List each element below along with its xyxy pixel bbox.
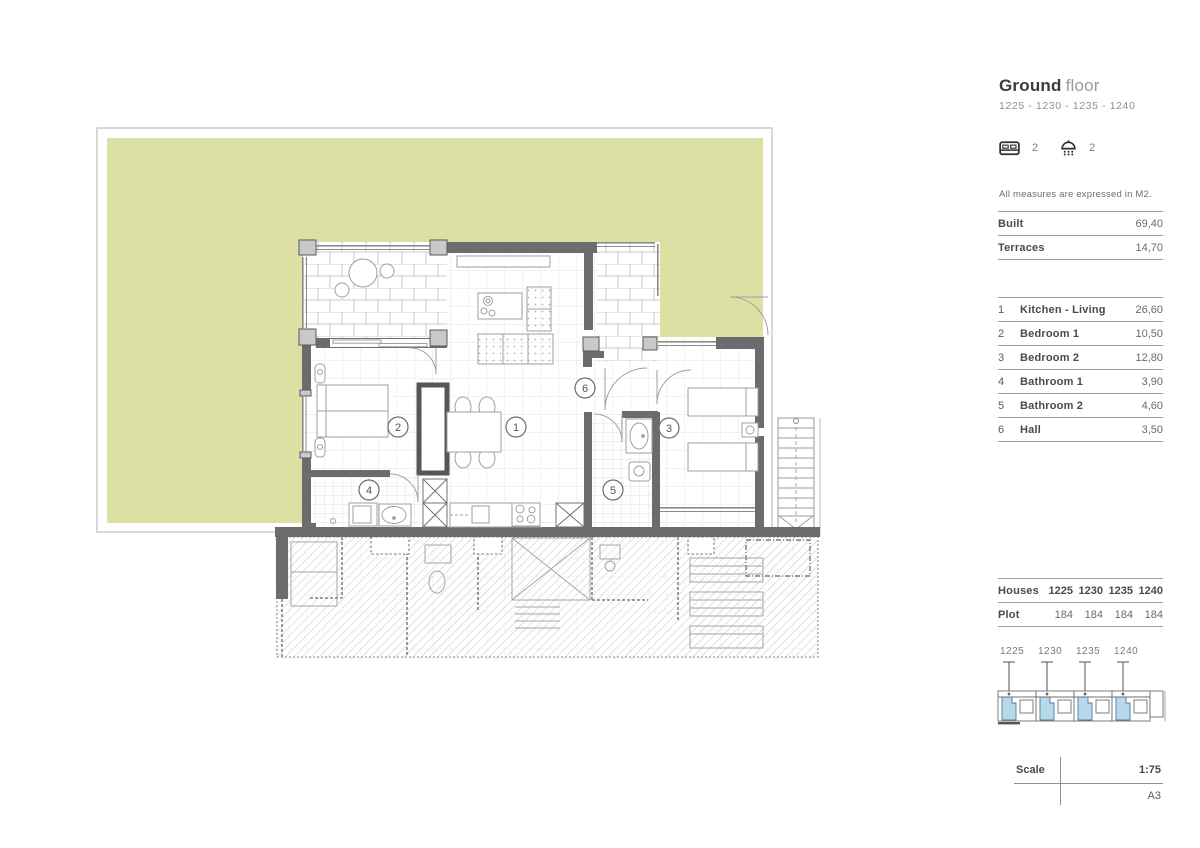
room-badge-6: 6 bbox=[575, 378, 595, 398]
unit-numbers-subtitle: 1225 - 1230 - 1235 - 1240 bbox=[999, 100, 1135, 112]
svg-text:2: 2 bbox=[395, 422, 401, 434]
page-title: Groundfloor bbox=[999, 76, 1100, 96]
neighbour-unit-hatched bbox=[275, 535, 818, 659]
stat-label: Terraces bbox=[998, 242, 1045, 254]
external-stairs bbox=[778, 418, 820, 535]
stat-value: 69,40 bbox=[1135, 218, 1163, 230]
room-name: Bathroom 1 bbox=[1020, 376, 1083, 388]
plot-label: Plot bbox=[998, 609, 1043, 621]
houses-table: Houses 1225 1230 1235 1240 Plot 184 184 … bbox=[998, 578, 1163, 627]
room-area: 4,60 bbox=[1142, 400, 1163, 412]
site-label-1235: 1235 bbox=[1076, 646, 1100, 657]
room-badge-1: 1 bbox=[506, 417, 526, 437]
rooms-table: 1 Kitchen - Living 26,60 2 Bedroom 1 10,… bbox=[998, 297, 1163, 442]
bedrooms-count: 2 bbox=[1032, 142, 1038, 154]
table-row: 2 Bedroom 1 10,50 bbox=[998, 321, 1163, 345]
table-row: Terraces 14,70 bbox=[998, 235, 1163, 260]
site-label-1240: 1240 bbox=[1114, 646, 1138, 657]
room-number: 3 bbox=[998, 352, 1020, 364]
bathroom2-fixtures bbox=[626, 419, 652, 481]
info-panel: Groundfloor 1225 - 1230 - 1235 - 1240 2 … bbox=[998, 0, 1163, 848]
scale-block: Scale 1:75 A3 bbox=[998, 757, 1163, 807]
scale-value: 1:75 bbox=[1139, 764, 1161, 776]
room-badge-3: 3 bbox=[659, 418, 679, 438]
table-row: 1 Kitchen - Living 26,60 bbox=[998, 297, 1163, 321]
stat-label: Built bbox=[998, 218, 1023, 230]
room-name: Kitchen - Living bbox=[1020, 304, 1106, 316]
svg-text:6: 6 bbox=[582, 383, 588, 395]
table-row: 6 Hall 3,50 bbox=[998, 417, 1163, 442]
svg-text:4: 4 bbox=[366, 485, 372, 497]
site-label-1225: 1225 bbox=[1000, 646, 1024, 657]
closet bbox=[419, 385, 447, 473]
room-badge-5: 5 bbox=[603, 480, 623, 500]
table-row: 5 Bathroom 2 4,60 bbox=[998, 393, 1163, 417]
floorplan-sheet: 1 2 3 4 5 6 Groundfloor 1225 - 1230 - 12… bbox=[0, 0, 1200, 848]
amenities-row: 2 2 bbox=[999, 138, 1095, 158]
room-number: 1 bbox=[998, 304, 1020, 316]
room-name: Bathroom 2 bbox=[1020, 400, 1083, 412]
table-row: 4 Bathroom 1 3,90 bbox=[998, 369, 1163, 393]
site-key-diagram: 1225 1230 1235 1240 bbox=[996, 642, 1168, 742]
room-name: Bedroom 1 bbox=[1020, 328, 1079, 340]
room-area: 3,90 bbox=[1142, 376, 1163, 388]
table-row: Built 69,40 bbox=[998, 211, 1163, 235]
leader-lines bbox=[1003, 662, 1129, 695]
title-sub: floor bbox=[1066, 76, 1100, 95]
scale-divider-vertical bbox=[1060, 757, 1061, 805]
room-number: 6 bbox=[998, 424, 1020, 436]
floor-plan-drawing: 1 2 3 4 5 6 bbox=[0, 0, 970, 848]
bathrooms-count: 2 bbox=[1089, 142, 1095, 154]
site-units bbox=[998, 691, 1165, 724]
room-area: 10,50 bbox=[1135, 328, 1163, 340]
stats-table: Built 69,40 Terraces 14,70 bbox=[998, 211, 1163, 260]
measures-note: All measures are expressed in M2. bbox=[999, 189, 1152, 200]
svg-text:1: 1 bbox=[513, 422, 519, 434]
stat-value: 14,70 bbox=[1135, 242, 1163, 254]
room-badge-2: 2 bbox=[388, 417, 408, 437]
table-row: Plot 184 184 184 184 bbox=[998, 602, 1163, 627]
title-main: Ground bbox=[999, 76, 1062, 95]
svg-text:5: 5 bbox=[610, 485, 616, 497]
room-number: 4 bbox=[998, 376, 1020, 388]
room-badge-4: 4 bbox=[359, 480, 379, 500]
room-area: 12,80 bbox=[1135, 352, 1163, 364]
room-name: Hall bbox=[1020, 424, 1041, 436]
svg-text:3: 3 bbox=[666, 423, 672, 435]
scale-divider-horizontal bbox=[1014, 783, 1163, 784]
table-row: 3 Bedroom 2 12,80 bbox=[998, 345, 1163, 369]
site-label-1230: 1230 bbox=[1038, 646, 1062, 657]
scale-label: Scale bbox=[1016, 764, 1045, 776]
room-area: 26,60 bbox=[1135, 304, 1163, 316]
room-name: Bedroom 2 bbox=[1020, 352, 1079, 364]
paper-size: A3 bbox=[1148, 790, 1161, 802]
kitchen-island bbox=[478, 293, 522, 319]
houses-label: Houses bbox=[998, 585, 1043, 597]
room-number: 5 bbox=[998, 400, 1020, 412]
room-area: 3,50 bbox=[1142, 424, 1163, 436]
room-number: 2 bbox=[998, 328, 1020, 340]
shower-icon bbox=[1060, 140, 1077, 157]
bed-icon bbox=[999, 140, 1020, 156]
terrace-tiles-nw bbox=[303, 242, 447, 338]
kitchen-counter bbox=[450, 503, 540, 527]
table-row: Houses 1225 1230 1235 1240 bbox=[998, 578, 1163, 602]
